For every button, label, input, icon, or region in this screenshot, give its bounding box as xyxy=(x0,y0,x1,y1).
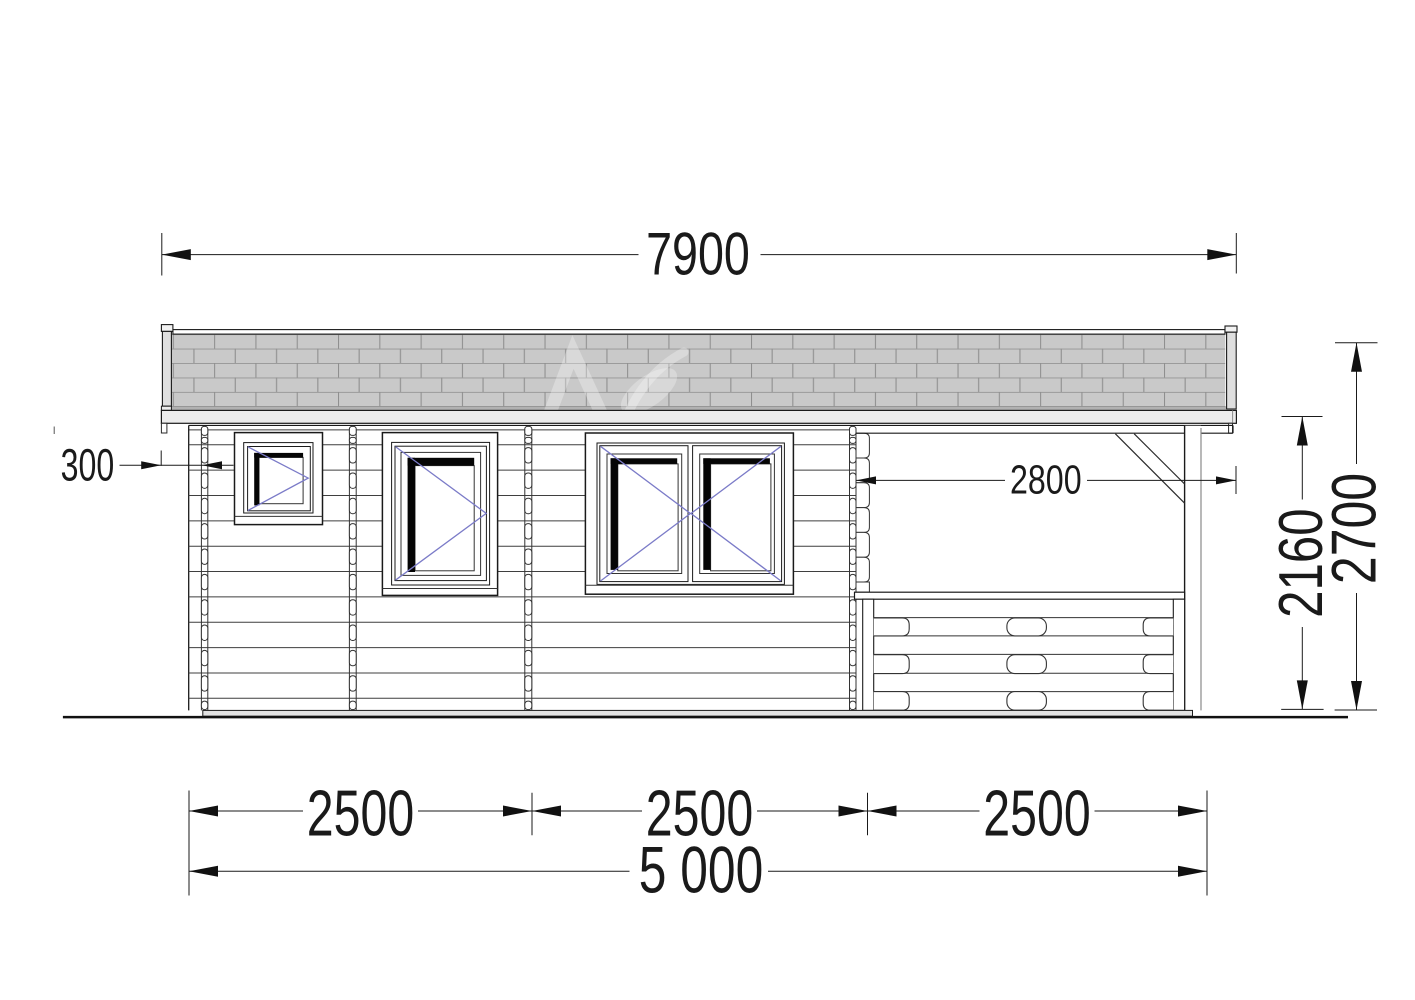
svg-text:7900: 7900 xyxy=(646,220,750,288)
svg-text:300: 300 xyxy=(61,439,115,490)
svg-text:5 000: 5 000 xyxy=(639,833,764,907)
svg-text:2700: 2700 xyxy=(1320,473,1390,584)
svg-text:2500: 2500 xyxy=(983,776,1090,849)
svg-text:2800: 2800 xyxy=(1010,457,1082,503)
svg-text:2500: 2500 xyxy=(307,776,414,849)
